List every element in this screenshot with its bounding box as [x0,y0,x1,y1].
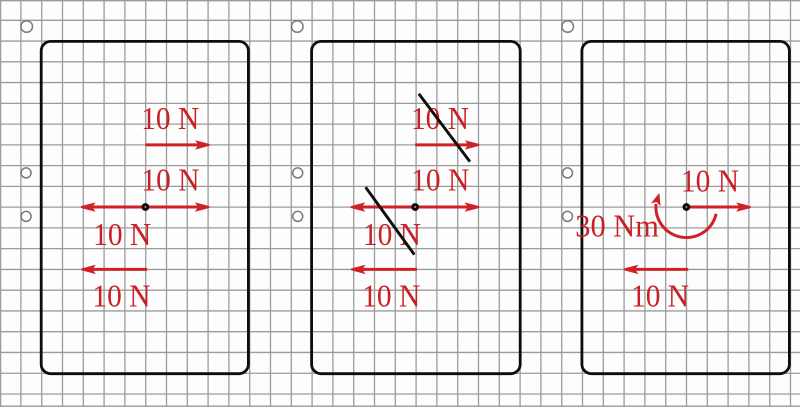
svg-text:10 N: 10 N [141,101,199,136]
svg-text:30 Nm: 30 Nm [575,208,659,244]
svg-text:10 N: 10 N [93,217,151,252]
svg-text:10 N: 10 N [362,279,420,314]
svg-text:10 N: 10 N [681,164,739,199]
svg-text:10 N: 10 N [631,279,689,314]
svg-text:10 N: 10 N [411,101,469,136]
svg-text:10 N: 10 N [92,279,150,314]
svg-text:10 N: 10 N [411,162,469,197]
svg-text:10 N: 10 N [141,162,199,197]
